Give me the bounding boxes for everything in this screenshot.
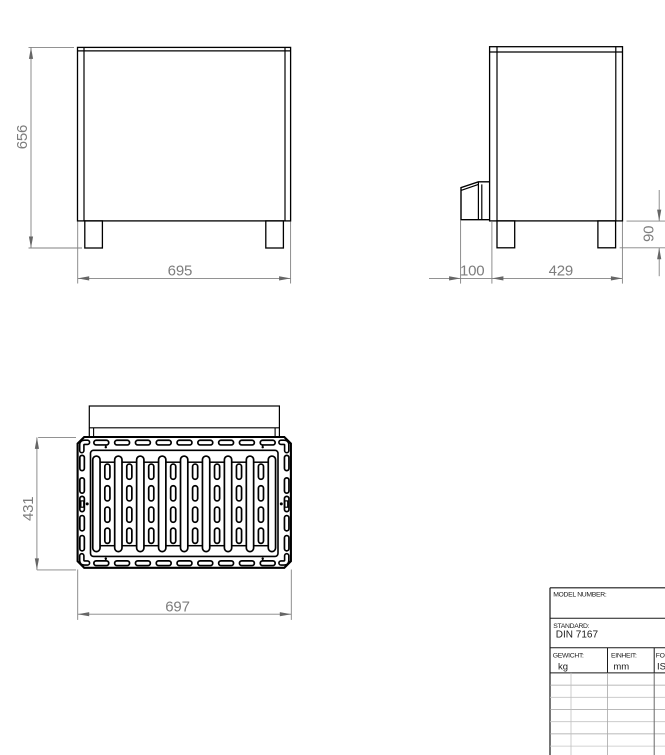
svg-text:FO: FO — [656, 652, 665, 659]
svg-text:MODEL NUMBER:: MODEL NUMBER: — [553, 591, 607, 598]
svg-text:GEWICHT:: GEWICHT: — [553, 652, 584, 659]
svg-text:90: 90 — [640, 226, 657, 242]
svg-text:431: 431 — [20, 497, 37, 521]
svg-text:DIN 7167: DIN 7167 — [556, 630, 599, 641]
svg-text:EINHEIT:: EINHEIT: — [611, 652, 637, 659]
svg-text:656: 656 — [14, 125, 31, 149]
svg-text:429: 429 — [549, 263, 573, 280]
svg-text:kg: kg — [558, 662, 568, 673]
svg-text:695: 695 — [168, 263, 192, 280]
svg-text:100: 100 — [460, 263, 484, 280]
svg-text:mm: mm — [613, 661, 629, 672]
svg-text:IS: IS — [657, 662, 665, 673]
svg-text:697: 697 — [165, 599, 189, 616]
